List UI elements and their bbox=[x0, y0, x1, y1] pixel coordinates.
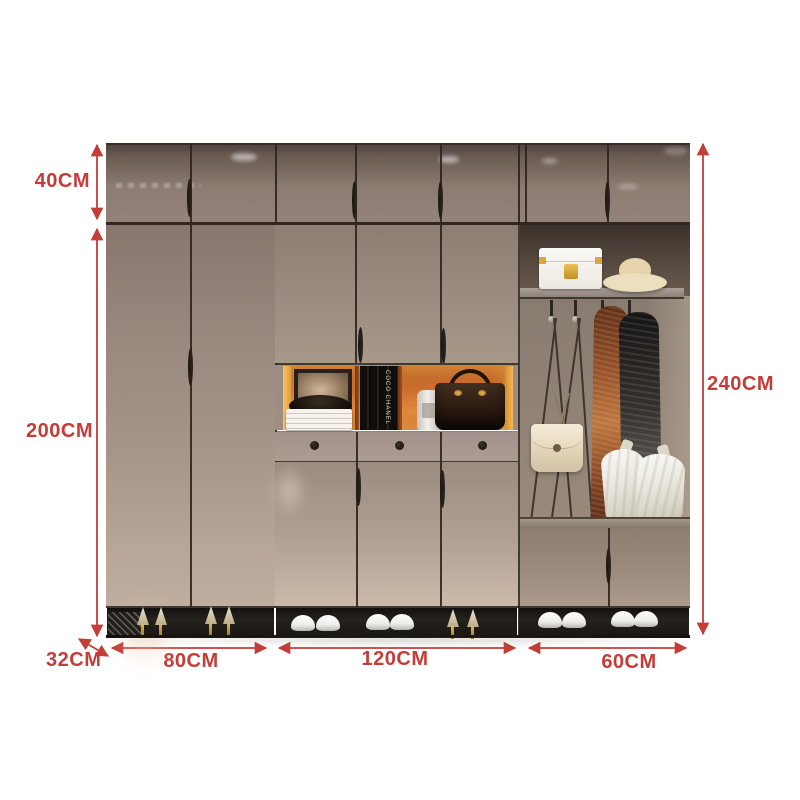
drawer-knob bbox=[478, 441, 487, 450]
sneaker-shoe bbox=[316, 615, 340, 631]
door-handle bbox=[605, 181, 610, 219]
door-handle bbox=[440, 470, 445, 508]
dim-label-main-height: 200CM bbox=[26, 420, 92, 443]
sneaker-shoe bbox=[366, 614, 390, 630]
bag-creases bbox=[635, 453, 685, 522]
door-handle bbox=[356, 468, 361, 506]
middle-lower-doors bbox=[275, 462, 518, 606]
top-cabinet-row bbox=[106, 143, 690, 222]
sneaker-shoe bbox=[390, 614, 414, 630]
dim-label-depth: 32CM bbox=[46, 649, 100, 672]
product-image: 40CM 200CM 240CM 32CM 80CM 120CM 60CM bbox=[0, 0, 800, 800]
hat-shelf bbox=[520, 288, 684, 299]
bag-clasp bbox=[553, 444, 561, 452]
cabinet-top-edge bbox=[106, 143, 690, 145]
right-lower-doors bbox=[520, 528, 690, 606]
ceiling-light-reflection bbox=[664, 147, 688, 155]
door-handle bbox=[358, 327, 363, 363]
door-seam bbox=[525, 143, 527, 222]
sneaker-shoe bbox=[291, 615, 315, 631]
door-handle bbox=[188, 348, 193, 386]
shoe-storage-bag bbox=[635, 453, 685, 522]
drawer-knob bbox=[395, 441, 404, 450]
sneaker-shoe bbox=[634, 611, 658, 627]
drawer-seam bbox=[275, 431, 518, 432]
box-gold-latch bbox=[564, 264, 578, 279]
dim-label-total-height: 240CM bbox=[707, 373, 779, 396]
door-handle bbox=[441, 328, 446, 364]
drawer-seam bbox=[356, 432, 358, 462]
dim-label-right-width: 60CM bbox=[589, 651, 669, 674]
drawer-knob bbox=[310, 441, 319, 450]
high-heel-shoe bbox=[204, 606, 218, 636]
high-heel-shoe bbox=[222, 606, 236, 636]
door-handle bbox=[352, 181, 357, 219]
door-seam bbox=[275, 143, 277, 222]
box-lid-line bbox=[539, 261, 602, 262]
book-spine-text: COCO CHANEL bbox=[384, 370, 390, 428]
door-seam bbox=[355, 225, 357, 363]
high-heel-shoe bbox=[136, 607, 150, 637]
ceiling-light-reflection bbox=[542, 158, 558, 164]
designer-handbag bbox=[435, 383, 505, 430]
door-seam bbox=[190, 225, 192, 607]
niche-light-strip bbox=[505, 366, 513, 430]
sneaker-shoe bbox=[611, 611, 635, 627]
ceiling-light-reflection bbox=[231, 153, 257, 161]
storage-box bbox=[539, 248, 602, 289]
dim-label-middle-width: 120CM bbox=[350, 648, 440, 671]
canister-label bbox=[422, 403, 435, 418]
niche-divider bbox=[355, 366, 359, 430]
ceiling-light-reflection bbox=[618, 183, 638, 190]
ceiling-light-reflection bbox=[439, 156, 459, 163]
chair-reflection bbox=[270, 463, 308, 518]
handbag-eye bbox=[478, 390, 486, 396]
high-heel-shoe bbox=[154, 607, 168, 637]
black-books: COCO CHANEL bbox=[360, 366, 398, 430]
sneaker-shoe bbox=[538, 612, 562, 628]
niche-divider bbox=[398, 366, 402, 430]
white-book-stack bbox=[286, 409, 352, 430]
door-handle bbox=[438, 181, 443, 219]
door-handle bbox=[187, 179, 192, 217]
box-gold-corner bbox=[595, 257, 602, 264]
straw-hat-brim bbox=[603, 273, 667, 292]
handbag-eye bbox=[454, 390, 462, 396]
dim-label-top-height: 40CM bbox=[34, 170, 90, 193]
drawer-seam bbox=[440, 432, 442, 462]
door-handle bbox=[606, 548, 611, 584]
middle-upper-doors bbox=[275, 225, 518, 363]
sneaker-shoe bbox=[562, 612, 586, 628]
bench-top bbox=[520, 519, 690, 528]
floor-shadow bbox=[110, 637, 696, 647]
box-gold-corner bbox=[539, 257, 546, 264]
wardrobe-cabinet: COCO CHANEL bbox=[106, 143, 690, 638]
crossbody-bag bbox=[531, 424, 583, 472]
